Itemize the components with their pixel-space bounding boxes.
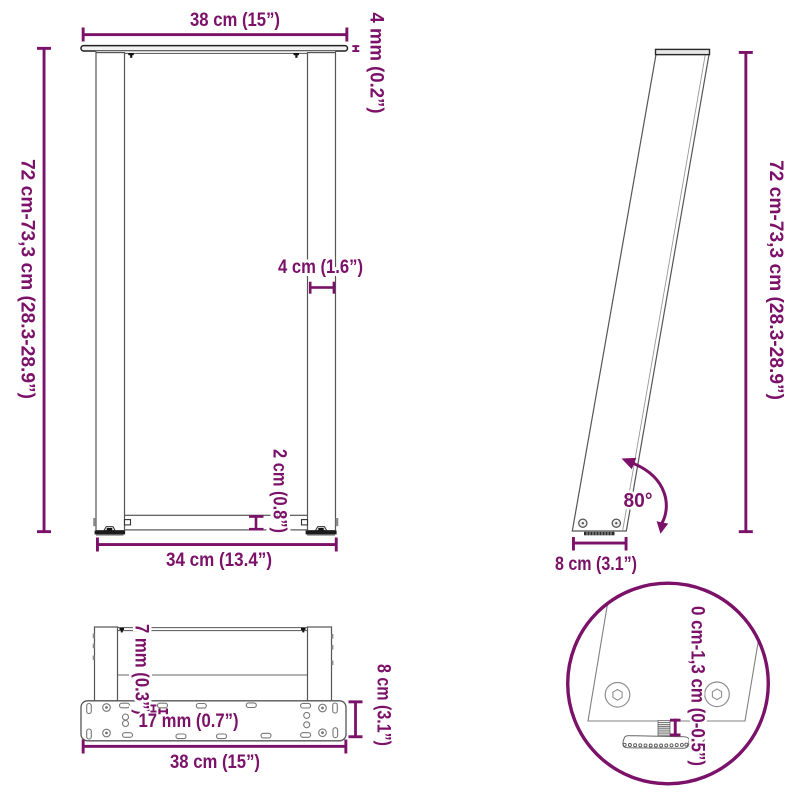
svg-text:4 cm (1.6”): 4 cm (1.6”) [278,257,363,278]
svg-text:8 cm (3.1”): 8 cm (3.1”) [372,664,393,746]
svg-text:0 cm-1,3 cm (0-0.5”): 0 cm-1,3 cm (0-0.5”) [686,606,707,766]
svg-text:17 mm (0.7”): 17 mm (0.7”) [139,711,239,732]
svg-text:38 cm (15”): 38 cm (15”) [170,752,260,773]
svg-text:8 cm (3.1”): 8 cm (3.1”) [555,554,637,575]
svg-text:34 cm (13.4”): 34 cm (13.4”) [166,550,272,571]
svg-text:80°: 80° [624,490,653,512]
svg-text:38 cm (15”): 38 cm (15”) [190,10,280,31]
svg-text:2 cm (0.8”): 2 cm (0.8”) [269,449,290,533]
svg-text:4 mm (0.2”): 4 mm (0.2”) [366,13,387,114]
svg-text:7 mm (0.3”): 7 mm (0.3”) [130,624,151,715]
svg-text:72 cm-73,3 cm (28.3-28.9”): 72 cm-73,3 cm (28.3-28.9”) [765,160,786,400]
svg-text:72 cm-73,3 cm (28.3-28.9”): 72 cm-73,3 cm (28.3-28.9”) [16,159,37,399]
